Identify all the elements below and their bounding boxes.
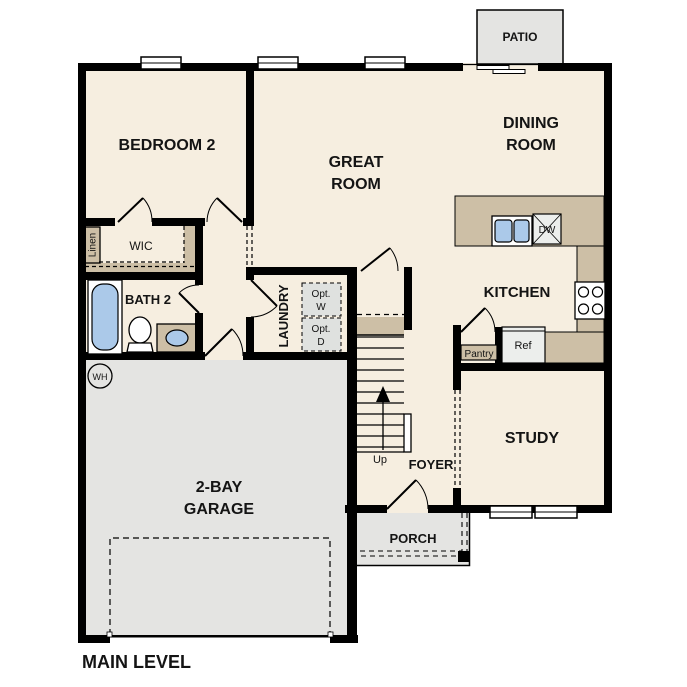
label-garage-2: GARAGE xyxy=(184,501,255,518)
wall-bedroom-bottom-2 xyxy=(152,218,205,226)
floor-plan: BEDROOM 2 GREAT ROOM DINING ROOM KITCHEN… xyxy=(0,0,687,687)
wall-stair-closet-right xyxy=(404,267,412,330)
wall-laundry-left-upper xyxy=(246,267,254,280)
wall-study-left-lower xyxy=(453,488,461,513)
label-great-room-2: ROOM xyxy=(331,176,381,193)
window-great-room-left xyxy=(258,57,298,69)
label-wh: WH xyxy=(93,372,108,382)
wall-wic-bath xyxy=(78,272,203,280)
window-great-room-right xyxy=(365,57,405,69)
wall-laundry-left-lower xyxy=(246,317,254,355)
label-study: STUDY xyxy=(505,430,560,447)
label-porch: PORCH xyxy=(390,531,437,546)
label-garage-1: 2-BAY xyxy=(196,479,243,496)
label-laundry: LAUNDRY xyxy=(276,284,291,347)
label-dining-room-1: DINING xyxy=(503,115,559,132)
window-study-left xyxy=(490,506,532,518)
wall-garage-right xyxy=(347,267,357,643)
label-dw: DW xyxy=(539,225,556,236)
stair-railing xyxy=(404,414,411,452)
label-ref: Ref xyxy=(514,340,532,352)
bathtub xyxy=(88,280,122,354)
wall-laundry-top xyxy=(246,267,357,275)
wall-bedroom-great xyxy=(246,63,254,225)
label-opt-w-2: W xyxy=(316,302,326,313)
stove xyxy=(575,282,605,319)
label-linen: Linen xyxy=(88,233,99,257)
wall-garage-top-right xyxy=(243,352,357,360)
wall-top-right xyxy=(538,63,612,71)
window-bedroom2 xyxy=(141,57,181,69)
window-study-right xyxy=(535,506,577,518)
kitchen-sink xyxy=(492,216,532,246)
wall-garage-bottom-left xyxy=(78,635,110,643)
label-opt-d-2: D xyxy=(317,337,324,348)
garage-slab xyxy=(86,360,347,635)
label-wic: WIC xyxy=(129,239,153,253)
label-kitchen: KITCHEN xyxy=(484,284,551,301)
toilet xyxy=(127,317,153,352)
garage-door-post-right xyxy=(328,632,333,637)
wall-bedroom-bottom-1 xyxy=(78,218,115,226)
label-great-room-1: GREAT xyxy=(329,154,384,171)
label-dining-room-2: ROOM xyxy=(506,137,556,154)
label-patio: PATIO xyxy=(503,30,538,44)
label-foyer: FOYER xyxy=(409,457,454,472)
stair-landing xyxy=(357,317,404,335)
porch-post xyxy=(458,551,469,562)
label-opt-w-1: Opt. xyxy=(312,289,331,300)
label-bedroom2: BEDROOM 2 xyxy=(119,137,216,154)
wall-pantry-left xyxy=(453,325,461,371)
label-pantry: Pantry xyxy=(465,349,494,360)
vanity-sink xyxy=(166,330,188,346)
wall-bedroom-bottom-3 xyxy=(243,218,254,226)
garage-door-sill xyxy=(110,635,330,638)
kitchen-counter-bottom xyxy=(545,332,604,363)
floor-plan-page: BEDROOM 2 GREAT ROOM DINING ROOM KITCHEN… xyxy=(0,0,687,687)
label-up: Up xyxy=(373,454,387,466)
level-title: MAIN LEVEL xyxy=(82,652,191,672)
garage-door-post-left xyxy=(107,632,112,637)
label-bath2: BATH 2 xyxy=(125,292,171,307)
wall-kitchen-study xyxy=(453,363,612,371)
label-opt-d-1: Opt. xyxy=(312,324,331,335)
